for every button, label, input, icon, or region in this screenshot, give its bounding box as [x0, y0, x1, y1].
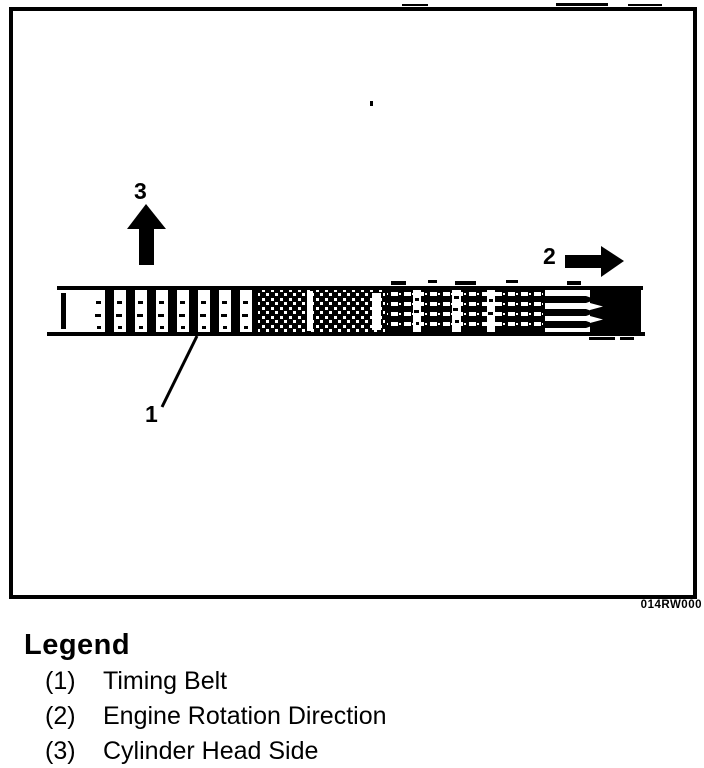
- diagram-canvas: [0, 0, 704, 622]
- legend-item-label: Cylinder Head Side: [103, 737, 387, 766]
- legend-item: (2) Engine Rotation Direction: [24, 702, 387, 731]
- scan-noise-top: [370, 3, 662, 106]
- figure-code: 014RW000: [641, 600, 702, 612]
- up-arrow-icon: [127, 204, 166, 265]
- right-arrow-icon: [565, 246, 624, 277]
- legend-item-number: (2): [45, 702, 103, 731]
- legend: Legend (1) Timing Belt (2) Engine Rotati…: [24, 629, 387, 766]
- legend-item: (3) Cylinder Head Side: [24, 737, 387, 766]
- timing-belt-illustration: [47, 280, 645, 340]
- manual-page: 1 2 3 014RW000 Legend (1) Timing Belt (2…: [0, 0, 704, 768]
- legend-item: (1) Timing Belt: [24, 667, 387, 696]
- legend-item-label: Engine Rotation Direction: [103, 702, 387, 731]
- legend-title: Legend: [24, 629, 387, 661]
- legend-item-label: Timing Belt: [103, 667, 387, 696]
- callout-1-leader-line: [162, 336, 197, 407]
- callout-1-label: 1: [145, 403, 158, 426]
- callout-2-label: 2: [543, 245, 556, 268]
- legend-item-number: (3): [45, 737, 103, 766]
- legend-item-number: (1): [45, 667, 103, 696]
- callout-3-label: 3: [134, 180, 147, 203]
- legend-items: (1) Timing Belt (2) Engine Rotation Dire…: [24, 667, 387, 766]
